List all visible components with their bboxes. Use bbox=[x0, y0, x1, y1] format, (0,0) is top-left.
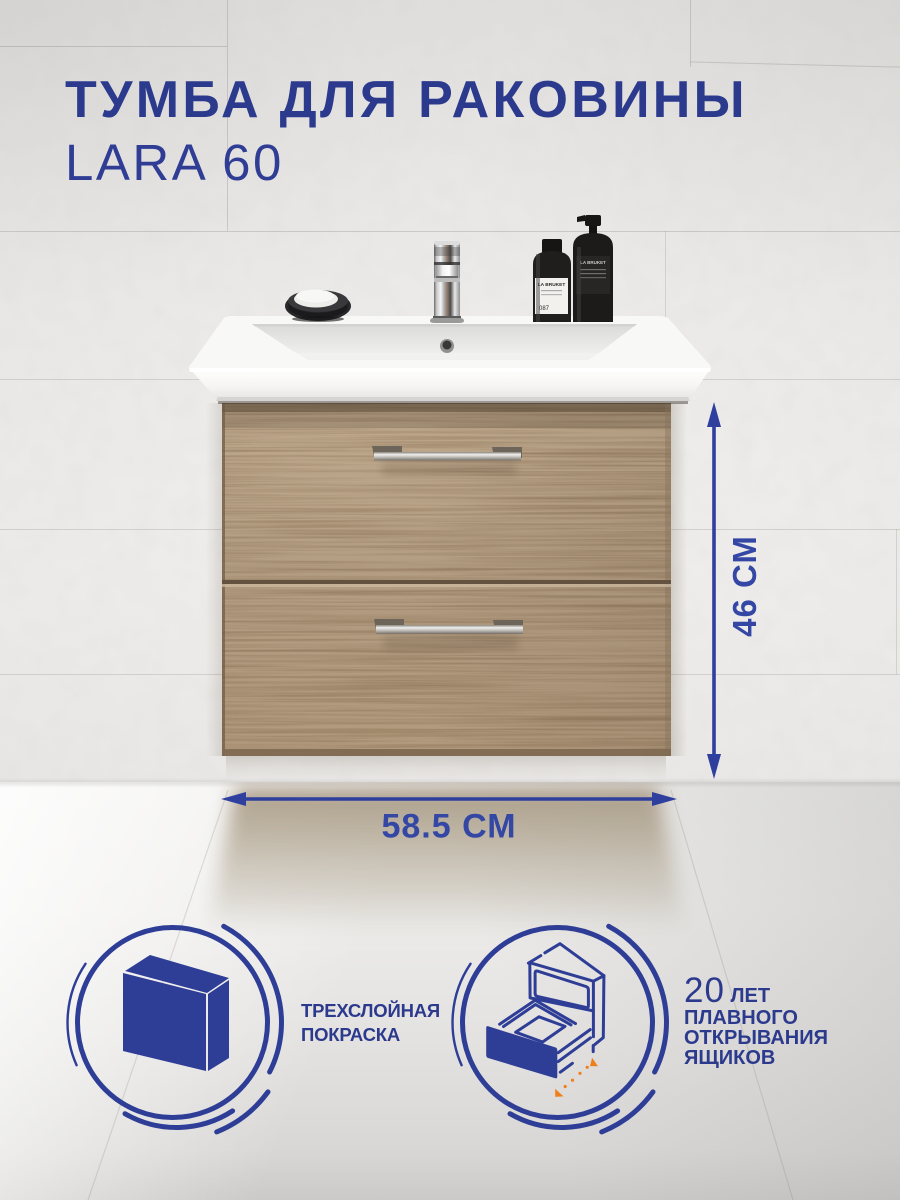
svg-text:LA BRUKET: LA BRUKET bbox=[538, 282, 566, 288]
svg-text:087: 087 bbox=[539, 306, 550, 312]
svg-text:LA BRUKET: LA BRUKET bbox=[580, 260, 606, 265]
